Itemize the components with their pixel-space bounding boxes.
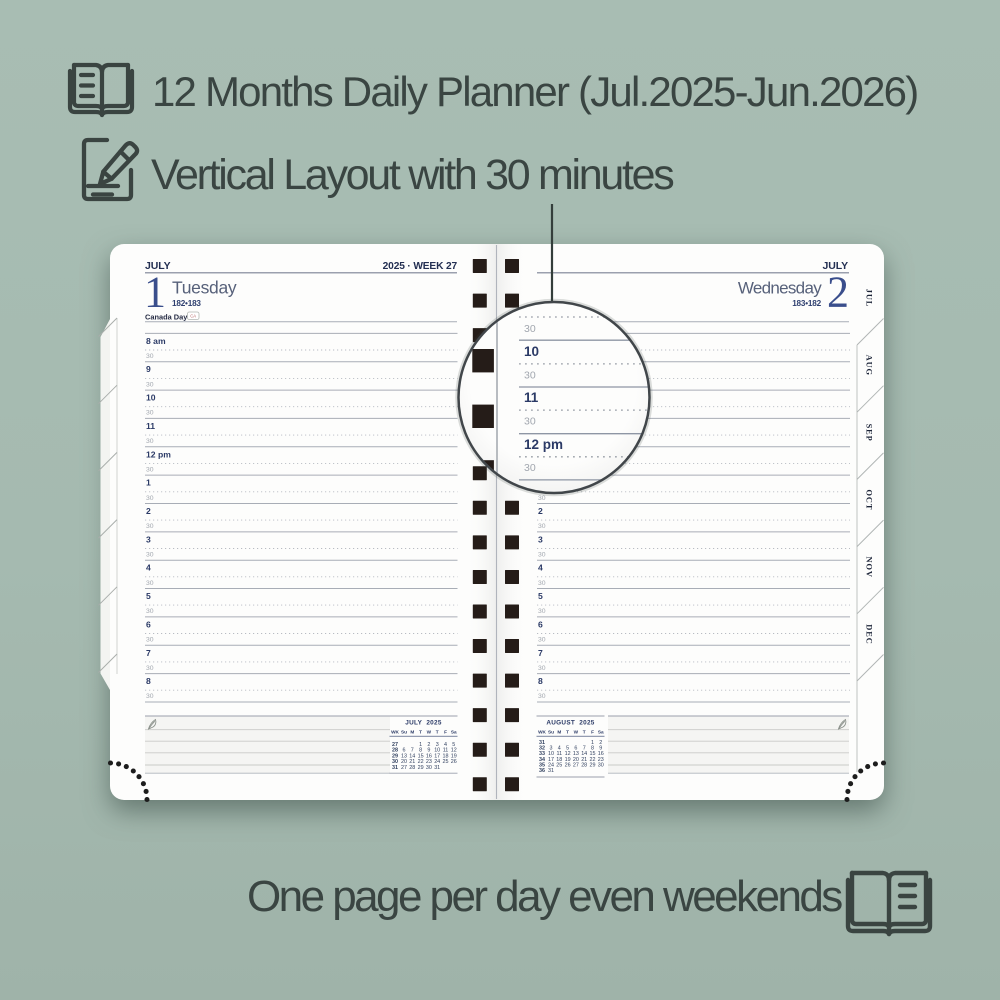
svg-text:30: 30: [146, 523, 154, 530]
svg-text:25: 25: [556, 763, 562, 769]
svg-text:30: 30: [524, 416, 536, 428]
svg-text:30: 30: [146, 353, 154, 360]
svg-text:30: 30: [146, 552, 154, 559]
svg-text:12 pm: 12 pm: [146, 449, 171, 459]
svg-text:30: 30: [598, 763, 604, 769]
svg-text:2: 2: [827, 268, 849, 317]
svg-text:30: 30: [146, 466, 154, 473]
svg-text:T: T: [583, 729, 586, 734]
svg-text:OCT: OCT: [865, 489, 874, 510]
svg-text:W: W: [574, 729, 579, 734]
svg-text:JUL: JUL: [865, 289, 874, 308]
svg-text:27: 27: [573, 763, 579, 769]
svg-text:T: T: [419, 729, 422, 734]
svg-text:9: 9: [146, 364, 151, 374]
svg-text:AUGUST 2025: AUGUST 2025: [546, 720, 594, 727]
svg-text:26: 26: [451, 759, 457, 765]
svg-text:Su: Su: [548, 729, 554, 734]
svg-text:1: 1: [146, 478, 151, 488]
svg-text:2: 2: [538, 506, 543, 516]
svg-text:30: 30: [538, 665, 546, 672]
svg-text:27: 27: [401, 765, 407, 771]
svg-text:183•182: 183•182: [792, 299, 821, 308]
svg-text:30: 30: [146, 580, 154, 587]
svg-text:5: 5: [146, 591, 151, 601]
svg-text:5: 5: [538, 591, 543, 601]
svg-text:NOV: NOV: [865, 557, 874, 578]
svg-text:30: 30: [146, 665, 154, 672]
svg-text:T: T: [566, 729, 569, 734]
svg-text:6: 6: [146, 619, 151, 629]
svg-text:30: 30: [538, 693, 546, 700]
svg-text:12 pm: 12 pm: [524, 437, 563, 452]
svg-text:WK: WK: [538, 729, 546, 734]
svg-text:30: 30: [538, 552, 546, 559]
svg-text:30: 30: [524, 369, 536, 381]
svg-text:7: 7: [538, 648, 543, 658]
svg-text:M: M: [410, 729, 414, 734]
svg-text:WK: WK: [391, 729, 399, 734]
svg-text:30: 30: [146, 608, 154, 615]
svg-text:Su: Su: [401, 729, 407, 734]
svg-text:30: 30: [146, 495, 154, 502]
svg-text:2: 2: [146, 506, 151, 516]
svg-text:30: 30: [146, 438, 154, 445]
svg-text:30: 30: [146, 410, 154, 417]
svg-text:28: 28: [581, 763, 587, 769]
svg-text:1: 1: [144, 268, 166, 317]
svg-text:Wednesday: Wednesday: [738, 279, 822, 298]
svg-text:3: 3: [146, 534, 151, 544]
svg-text:T: T: [436, 729, 439, 734]
svg-text:10: 10: [524, 344, 539, 359]
svg-text:30: 30: [538, 637, 546, 644]
svg-text:JULY 2025: JULY 2025: [405, 720, 442, 727]
svg-text:F: F: [591, 729, 594, 734]
svg-text:8: 8: [146, 676, 151, 686]
svg-text:Canada Day: Canada Day: [145, 313, 188, 322]
svg-text:30: 30: [538, 608, 546, 615]
svg-text:Tuesday: Tuesday: [172, 278, 237, 298]
svg-text:11: 11: [146, 421, 155, 431]
svg-text:11: 11: [524, 390, 539, 405]
svg-text:30: 30: [426, 765, 432, 771]
svg-text:28: 28: [409, 765, 415, 771]
svg-text:DEC: DEC: [865, 624, 874, 644]
svg-text:30: 30: [146, 693, 154, 700]
svg-text:30: 30: [538, 523, 546, 530]
svg-text:W: W: [427, 729, 432, 734]
svg-text:30: 30: [524, 323, 536, 335]
svg-text:31: 31: [392, 765, 398, 771]
svg-text:4: 4: [538, 563, 543, 573]
svg-text:F: F: [444, 729, 447, 734]
svg-text:3: 3: [538, 534, 543, 544]
svg-text:SEP: SEP: [865, 424, 874, 442]
svg-text:182•183: 182•183: [172, 299, 201, 308]
svg-text:8 am: 8 am: [146, 336, 166, 346]
svg-text:29: 29: [590, 763, 596, 769]
svg-text:AUG: AUG: [865, 355, 874, 376]
svg-text:6: 6: [538, 619, 543, 629]
svg-text:30: 30: [538, 495, 546, 502]
svg-text:29: 29: [418, 765, 424, 771]
svg-text:7: 7: [146, 648, 151, 658]
svg-text:31: 31: [548, 768, 554, 774]
svg-text:Sa: Sa: [451, 729, 457, 734]
svg-text:M: M: [557, 729, 561, 734]
svg-text:31: 31: [434, 765, 440, 771]
svg-text:CA: CA: [190, 314, 196, 319]
svg-text:30: 30: [538, 580, 546, 587]
svg-text:Sa: Sa: [598, 729, 604, 734]
svg-text:2025 · WEEK 27: 2025 · WEEK 27: [383, 261, 458, 272]
svg-text:26: 26: [565, 763, 571, 769]
svg-text:10: 10: [146, 393, 156, 403]
svg-text:25: 25: [443, 759, 449, 765]
svg-text:36: 36: [539, 768, 545, 774]
svg-text:30: 30: [146, 381, 154, 388]
svg-text:30: 30: [146, 637, 154, 644]
svg-text:30: 30: [524, 462, 536, 474]
svg-text:8: 8: [538, 676, 543, 686]
svg-text:4: 4: [146, 563, 151, 573]
